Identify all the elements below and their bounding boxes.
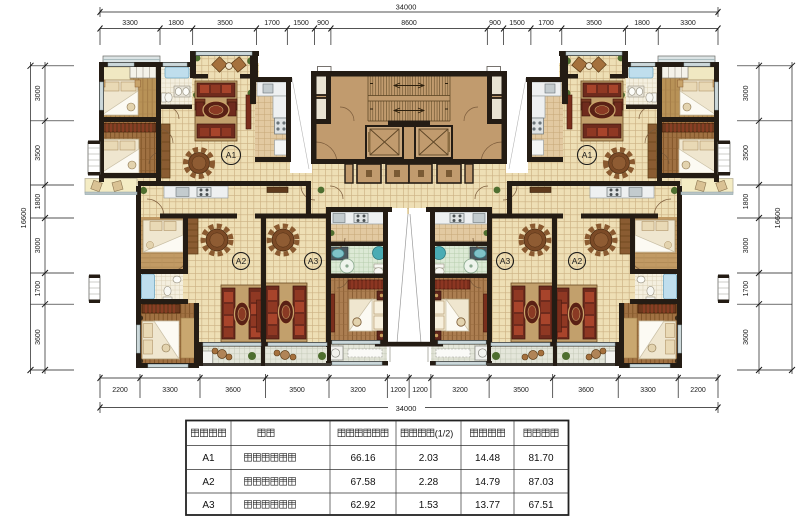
- svg-text:3600: 3600: [578, 387, 594, 394]
- svg-text:A1: A1: [202, 453, 215, 464]
- svg-text:14.79: 14.79: [475, 477, 500, 488]
- svg-text:A2: A2: [572, 256, 583, 266]
- svg-text:A2: A2: [202, 477, 215, 488]
- svg-text:3500: 3500: [35, 145, 42, 161]
- svg-text:1200: 1200: [412, 387, 428, 394]
- svg-text:3000: 3000: [35, 238, 42, 254]
- svg-text:1.53: 1.53: [419, 500, 439, 511]
- svg-text:3300: 3300: [680, 20, 696, 27]
- svg-text:3500: 3500: [217, 20, 233, 27]
- svg-text:66.16: 66.16: [350, 453, 375, 464]
- svg-text:1800: 1800: [743, 194, 750, 210]
- svg-text:81.70: 81.70: [528, 453, 553, 464]
- svg-text:13.77: 13.77: [475, 500, 500, 511]
- svg-text:3000: 3000: [743, 238, 750, 254]
- svg-text:3300: 3300: [640, 387, 656, 394]
- svg-text:1800: 1800: [634, 20, 650, 27]
- svg-text:62.92: 62.92: [350, 500, 375, 511]
- svg-text:34000: 34000: [396, 404, 417, 413]
- svg-text:A3: A3: [500, 256, 511, 266]
- svg-text:1700: 1700: [538, 20, 554, 27]
- svg-text:8600: 8600: [401, 20, 417, 27]
- svg-text:3500: 3500: [743, 145, 750, 161]
- svg-text:1800: 1800: [168, 20, 184, 27]
- svg-text:A1: A1: [226, 150, 237, 160]
- svg-text:3600: 3600: [35, 329, 42, 345]
- svg-text:A2: A2: [236, 256, 247, 266]
- svg-text:87.03: 87.03: [528, 477, 553, 488]
- svg-text:3500: 3500: [586, 20, 602, 27]
- svg-text:2.28: 2.28: [419, 477, 439, 488]
- svg-text:3000: 3000: [743, 85, 750, 101]
- svg-text:3300: 3300: [122, 20, 138, 27]
- svg-text:3200: 3200: [452, 387, 468, 394]
- svg-text:3500: 3500: [513, 387, 529, 394]
- svg-text:2.03: 2.03: [419, 453, 439, 464]
- svg-text:34000: 34000: [396, 3, 417, 12]
- svg-text:900: 900: [489, 20, 501, 27]
- svg-text:3500: 3500: [289, 387, 305, 394]
- svg-text:2200: 2200: [690, 387, 706, 394]
- svg-text:A3: A3: [308, 256, 319, 266]
- svg-text:3600: 3600: [225, 387, 241, 394]
- svg-text:2200: 2200: [112, 387, 128, 394]
- svg-text:A3: A3: [202, 500, 215, 511]
- svg-text:16600: 16600: [19, 208, 28, 229]
- svg-text:1700: 1700: [35, 281, 42, 297]
- svg-text:1700: 1700: [264, 20, 280, 27]
- svg-text:3300: 3300: [162, 387, 178, 394]
- svg-text:1500: 1500: [293, 20, 309, 27]
- svg-text:1700: 1700: [743, 281, 750, 297]
- svg-text:1200: 1200: [390, 387, 406, 394]
- svg-text:3000: 3000: [35, 85, 42, 101]
- svg-text:900: 900: [317, 20, 329, 27]
- svg-text:(1/2): (1/2): [435, 429, 454, 439]
- svg-text:3200: 3200: [350, 387, 366, 394]
- svg-text:1500: 1500: [509, 20, 525, 27]
- svg-text:A1: A1: [582, 150, 593, 160]
- svg-text:14.48: 14.48: [475, 453, 500, 464]
- svg-text:67.51: 67.51: [528, 500, 553, 511]
- svg-text:1800: 1800: [35, 194, 42, 210]
- svg-text:3600: 3600: [743, 329, 750, 345]
- svg-text:67.58: 67.58: [350, 477, 375, 488]
- svg-text:16600: 16600: [773, 208, 782, 229]
